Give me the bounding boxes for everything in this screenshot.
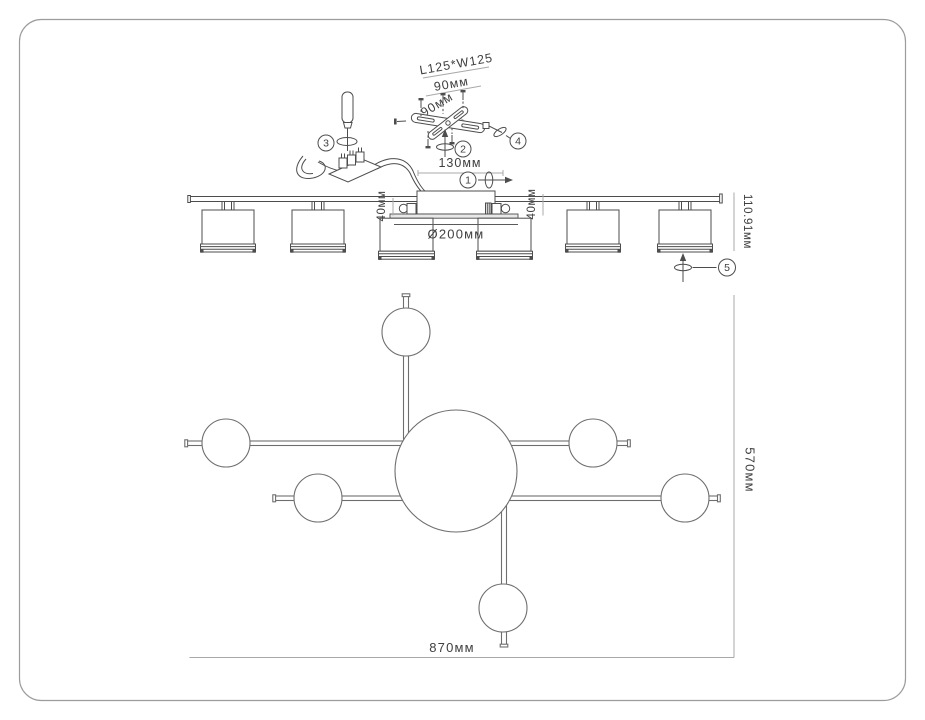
fixture-height-label: 110.91мм xyxy=(741,194,753,249)
shade-circle xyxy=(661,474,709,522)
plan-depth-label: 570мм xyxy=(743,447,758,493)
step-number-1: 1 xyxy=(465,175,471,187)
shade-diameter-label: Ø200мм xyxy=(428,227,485,242)
step-number-5: 5 xyxy=(724,262,730,274)
canopy-plate xyxy=(390,214,518,218)
offset-right-label: 40мм xyxy=(526,188,538,219)
offset-left-label: 40мм xyxy=(376,190,388,221)
shade-circle xyxy=(382,308,430,356)
swivel-joint-icon xyxy=(486,203,510,214)
step-number-4: 4 xyxy=(515,136,521,148)
swivel-joint-icon xyxy=(399,204,416,215)
step-number-2: 2 xyxy=(460,144,466,156)
step-number-3: 3 xyxy=(323,138,329,150)
canopy-length-label: 130мм xyxy=(438,156,481,170)
plan-width-label: 870мм xyxy=(429,640,475,655)
installation-diagram-page: L125*W125 90мм 90мм xyxy=(0,0,925,720)
central-canopy-circle xyxy=(395,410,517,532)
canopy-box xyxy=(417,191,495,214)
shade-circle xyxy=(569,419,617,467)
technical-drawing: L125*W125 90мм 90мм xyxy=(0,0,925,720)
shade-circle xyxy=(294,474,342,522)
shade-circle xyxy=(479,584,527,632)
shade-circle xyxy=(202,419,250,467)
